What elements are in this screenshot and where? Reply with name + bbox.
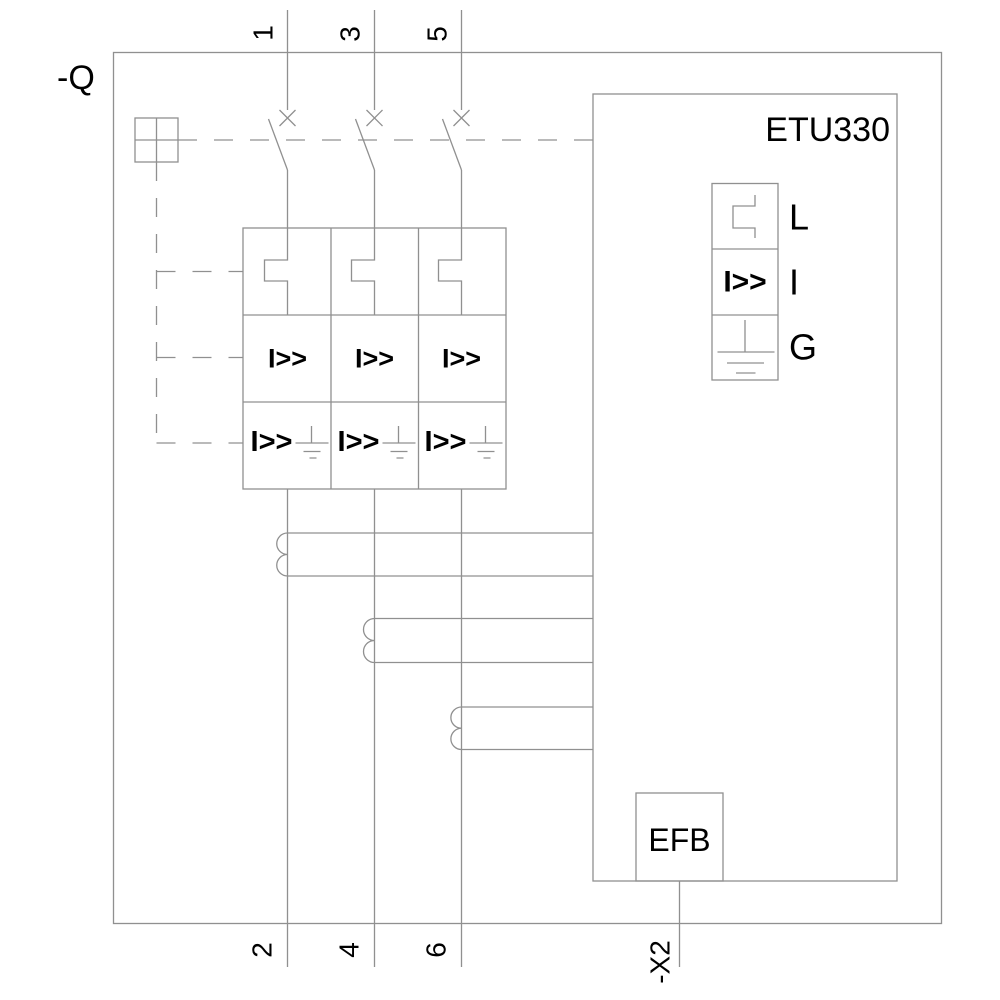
operating-mechanism-symbol bbox=[135, 118, 178, 162]
terminal-label-2: 2 bbox=[247, 942, 278, 958]
contact-cross-icon-2 bbox=[367, 110, 383, 126]
protection-legend: L I>> I G bbox=[712, 184, 817, 381]
circuit-diagram: -Q bbox=[0, 0, 1000, 1000]
contact-cross-icon-3 bbox=[454, 110, 470, 126]
device-designation-label: -Q bbox=[57, 59, 95, 97]
ct-tap-lines-3 bbox=[462, 707, 594, 750]
etu-box: ETU330 L I>> I G EFB bbox=[593, 94, 897, 967]
terminal-label-1: 1 bbox=[248, 25, 279, 41]
ground-fault-trip-label-1: I>> bbox=[251, 426, 293, 458]
instantaneous-trip-label-2: I>> bbox=[355, 344, 394, 374]
breaker-contact-blade-1 bbox=[269, 119, 288, 170]
breaker-contact-blade-2 bbox=[356, 119, 375, 170]
earth-icon bbox=[718, 320, 775, 373]
legend-label-g: G bbox=[789, 327, 817, 368]
earth-icon-row3-3 bbox=[470, 426, 503, 458]
ct-tap-lines-1 bbox=[288, 533, 594, 576]
instantaneous-trip-label-3: I>> bbox=[442, 344, 481, 374]
terminal-label-6: 6 bbox=[421, 942, 452, 958]
current-transformer-coil-3 bbox=[451, 707, 462, 750]
ground-fault-trip-label-2: I>> bbox=[338, 426, 380, 458]
ground-fault-trip-label-3: I>> bbox=[425, 426, 467, 458]
terminal-label-4: 4 bbox=[334, 942, 365, 958]
terminal-block-label: -X2 bbox=[645, 940, 676, 984]
enclosure-border bbox=[114, 53, 942, 924]
trip-unit-grid: I>> I>> I>> I>> I>> I>> bbox=[243, 228, 506, 489]
long-time-trip-symbol-1 bbox=[265, 228, 288, 315]
earth-icon-row3-2 bbox=[383, 426, 416, 458]
current-transformer-coil-2 bbox=[364, 619, 375, 663]
ct-tap-lines-2 bbox=[375, 619, 594, 663]
current-transformer-coil-1 bbox=[277, 533, 288, 576]
terminal-label-5: 5 bbox=[422, 26, 453, 42]
etu-border bbox=[593, 94, 897, 881]
legend-instantaneous-symbol: I>> bbox=[723, 266, 766, 299]
legend-label-i: I bbox=[789, 262, 799, 303]
instantaneous-trip-label-1: I>> bbox=[268, 344, 307, 374]
contact-cross-icon-1 bbox=[280, 110, 296, 126]
legend-label-l: L bbox=[789, 197, 809, 238]
long-time-curve-icon bbox=[733, 195, 755, 238]
etu-title: ETU330 bbox=[765, 111, 890, 149]
terminal-label-3: 3 bbox=[335, 26, 366, 42]
earth-icon-row3-1 bbox=[296, 426, 329, 458]
breaker-contact-blade-3 bbox=[443, 119, 462, 170]
breaker-schematic-canvas: -Q bbox=[0, 0, 1000, 1000]
efb-label: EFB bbox=[648, 822, 710, 858]
long-time-trip-symbol-3 bbox=[439, 228, 462, 315]
long-time-trip-symbol-2 bbox=[352, 228, 375, 315]
mechanism-cross bbox=[135, 118, 178, 162]
